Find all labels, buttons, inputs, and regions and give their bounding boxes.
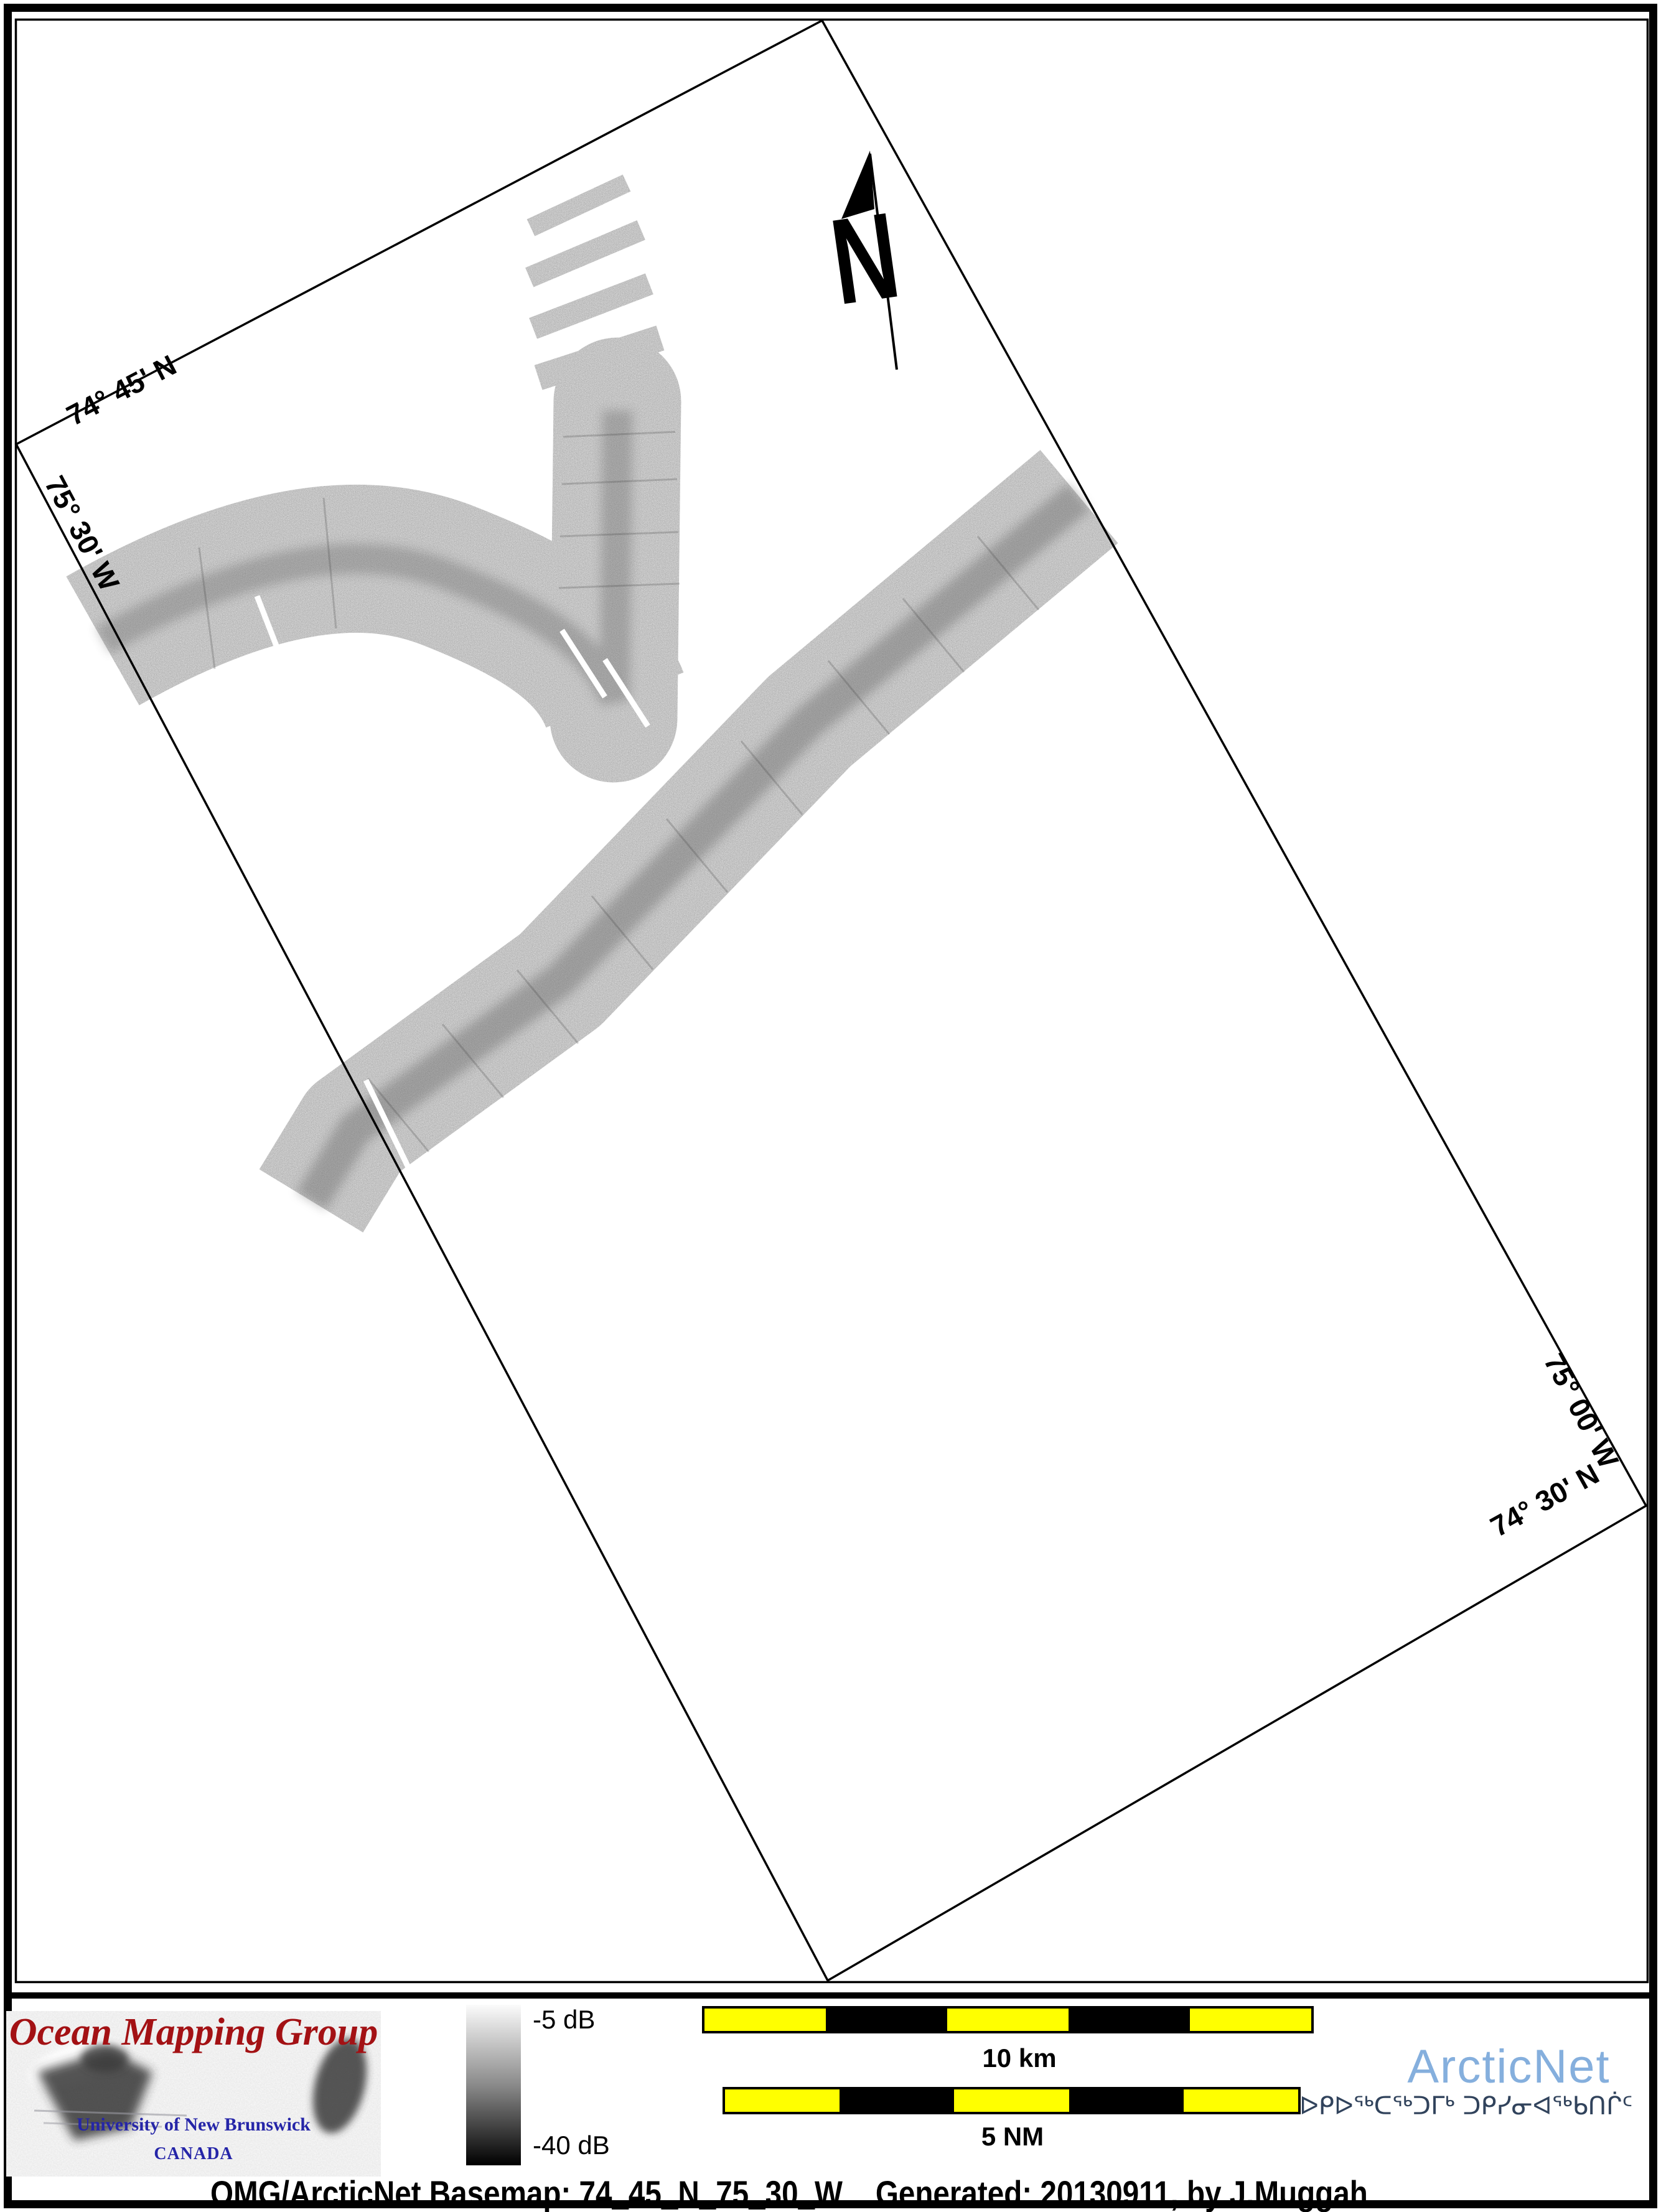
scalebar-cell <box>954 2089 1069 2112</box>
outer-border <box>8 8 1654 2205</box>
scalebar-cell <box>840 2089 954 2112</box>
scalebar-cell <box>1069 2009 1190 2031</box>
scalebar-5nm-label: 5 NM <box>919 2122 1106 2152</box>
scalebar-cell <box>704 2009 826 2031</box>
map-frame <box>16 21 1646 1981</box>
colorbar <box>466 2005 521 2165</box>
sonar-swaths <box>103 174 1079 1201</box>
map-graphics <box>0 0 1661 2212</box>
scalebar-10km <box>702 2006 1314 2033</box>
footer-caption: OMG/ArcticNet Basemap: 74_45_N_75_30_W G… <box>210 2173 1368 2212</box>
scalebar-cell <box>947 2009 1069 2031</box>
arcticnet-logo-text: ArcticNet <box>1357 2040 1661 2094</box>
scalebar-cell <box>725 2089 840 2112</box>
scalebar-cell <box>1190 2009 1311 2031</box>
arcticnet-inuktitut-text: ᐅᑭᐅᖅᑕᖅᑐᒥᒃ ᑐᑭᓯᓂᐊᖅᑲᑎᒌᑦ <box>1299 2092 1661 2121</box>
colorbar-min-label: -40 dB <box>533 2130 610 2160</box>
canada-label: CANADA <box>6 2144 381 2164</box>
scalebar-cell <box>826 2009 947 2031</box>
scalebar-cell <box>1069 2089 1184 2112</box>
omg-logo-title: Ocean Mapping Group <box>6 2010 381 2055</box>
scalebar-5nm <box>723 2087 1301 2114</box>
scalebar-cell <box>1184 2089 1298 2112</box>
unb-label: University of New Brunswick <box>6 2114 381 2135</box>
scalebar-10km-label: 10 km <box>926 2043 1113 2073</box>
colorbar-max-label: -5 dB <box>533 2005 595 2035</box>
basemap-page: 74° 45' N 75° 30' W 75° 00' W 74° 30' N … <box>0 0 1661 2212</box>
inner-border <box>16 20 1648 1982</box>
